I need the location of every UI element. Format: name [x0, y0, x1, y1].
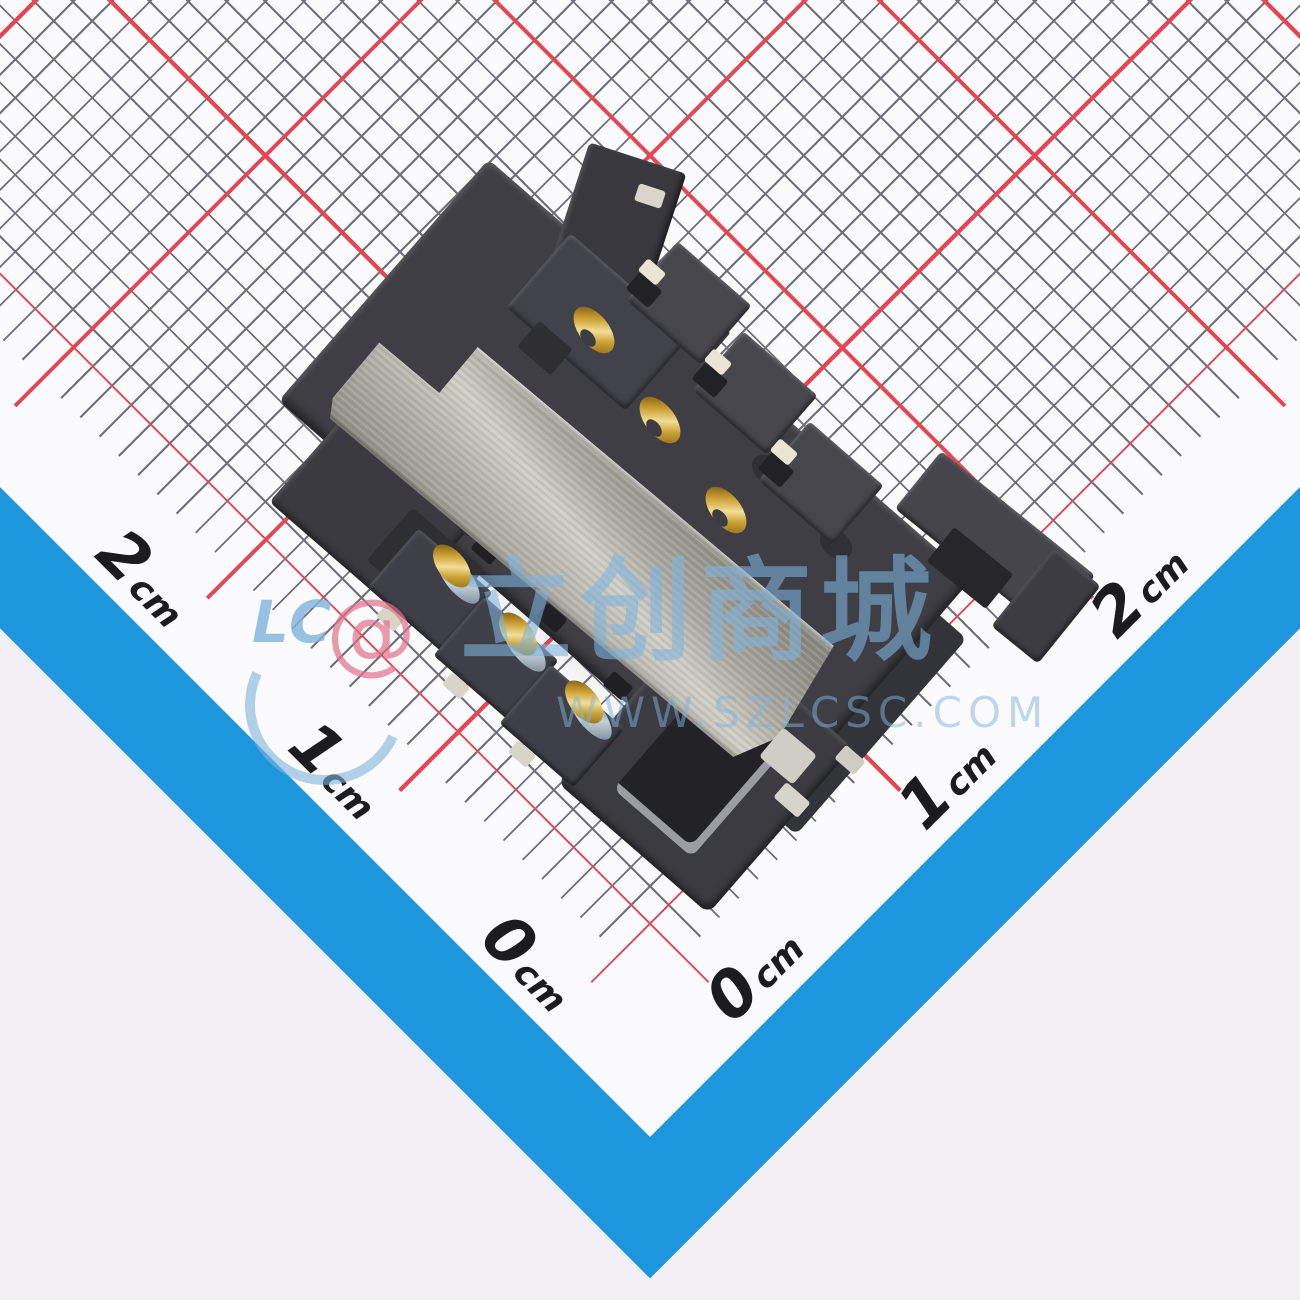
- photo-stage: 0 cm 1 cm 2 cm 0 cm 1 cm 2 cm: [0, 0, 1300, 1300]
- sim-connector: [0, 0, 1300, 1300]
